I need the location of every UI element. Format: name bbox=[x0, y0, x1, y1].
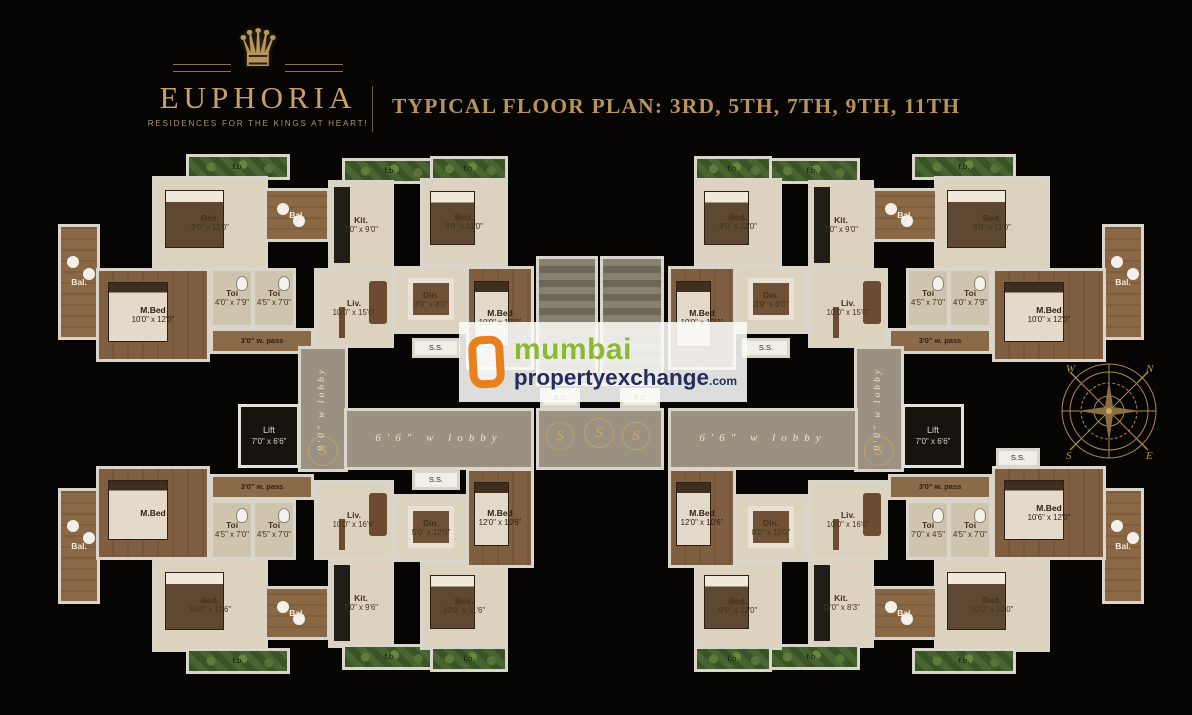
room-label: f.b. bbox=[958, 656, 969, 665]
room-label: f.b. bbox=[727, 654, 738, 663]
room-dimensions: 4'5" x 7'0" bbox=[215, 530, 249, 540]
balcony: Bal. bbox=[60, 490, 98, 602]
room-m-bed: M.Bed bbox=[98, 468, 208, 558]
room-dimensions: 12'0" x 10'6" bbox=[681, 518, 724, 528]
floor-plan-page: f.b.Bed.9'0" x 11'0"Bal.M.Bed10'0" x 12'… bbox=[0, 0, 1192, 715]
mumbai-property-exchange-logo-icon bbox=[468, 335, 506, 389]
room-label: Din. bbox=[423, 518, 439, 529]
room-label: S bbox=[595, 424, 603, 443]
room-label: Bed. bbox=[729, 596, 747, 607]
room-dimensions: 10'0" x 12'0" bbox=[1028, 315, 1071, 325]
room-kit: Kit.7'0" x 9'6" bbox=[330, 560, 392, 646]
crown-flourish-right bbox=[285, 64, 343, 72]
room-dimensions: 4'5" x 7'0" bbox=[911, 298, 945, 308]
watermark: mumbai propertyexchange.com bbox=[459, 322, 747, 402]
room-bed: Bed.9'0" x 12'0" bbox=[696, 564, 780, 648]
room-label: M.Bed bbox=[487, 508, 513, 519]
duct-s-s: S.S. bbox=[744, 340, 788, 356]
room-label: Toi bbox=[964, 520, 976, 531]
crown-flourish-left bbox=[173, 64, 231, 72]
room-dimensions: 4'0" x 7'9" bbox=[215, 298, 249, 308]
room-dimensions: 9'0" x 12'0" bbox=[719, 606, 757, 616]
compass-south-label: S bbox=[1066, 450, 1072, 462]
lobby-corridor: 6'6" w lobby bbox=[670, 410, 856, 468]
compass-rose-icon: W N S E bbox=[1056, 358, 1162, 464]
room-label: M.Bed bbox=[1036, 503, 1062, 514]
room-dimensions: 9'0" x 11'0" bbox=[445, 222, 483, 232]
room-label: Kit. bbox=[354, 593, 368, 604]
room-label: Bed. bbox=[983, 595, 1001, 606]
room-dimensions: 4'5" x 7'0" bbox=[257, 298, 291, 308]
room-toi: Toi4'5" x 7'0" bbox=[212, 502, 252, 558]
flower-bed: f.b. bbox=[696, 158, 770, 180]
room-dimensions: 10'0" x 16'9" bbox=[333, 520, 376, 530]
crown-row: ♛ bbox=[128, 14, 388, 78]
passage: 3'0" w. pass bbox=[212, 476, 312, 498]
room-label: S bbox=[632, 427, 640, 446]
balcony: Bal. bbox=[266, 190, 328, 240]
lift: Lift7'0" x 6'6" bbox=[240, 406, 298, 466]
duct-s-s: S.S. bbox=[414, 472, 458, 488]
compass-west-label: W bbox=[1066, 363, 1076, 375]
room-label: Liv. bbox=[347, 298, 361, 309]
room-dimensions: 10'0" x 11'6" bbox=[189, 605, 231, 615]
room-dimensions: 10'0" x 15'0" bbox=[333, 308, 376, 318]
room-dimensions: 9'0" x 11'0" bbox=[973, 223, 1011, 233]
room-label: f.b. bbox=[727, 164, 738, 173]
duct-s-s: S.S. bbox=[998, 450, 1038, 466]
room-label: M.Bed bbox=[487, 308, 513, 319]
room-label: Liv. bbox=[347, 510, 361, 521]
room-label: Bal. bbox=[1115, 277, 1131, 288]
compass-north-label: N bbox=[1145, 363, 1154, 375]
room-label: Bal. bbox=[71, 277, 87, 288]
room-label: 3'0" w. pass bbox=[919, 482, 962, 491]
room-label: Kit. bbox=[354, 215, 368, 226]
passage: 3'0" w. pass bbox=[212, 330, 312, 352]
room-label: 3'0" w. pass bbox=[241, 482, 284, 491]
room-label: Bed. bbox=[455, 212, 473, 223]
room-label: S.S. bbox=[1011, 453, 1025, 462]
room-label: f.b. bbox=[806, 166, 817, 175]
room-label: f.b. bbox=[463, 654, 474, 663]
compass-east-label: E bbox=[1145, 450, 1153, 462]
room-label: f.b. bbox=[958, 162, 969, 171]
room-dimensions: 7'0" x 6'6" bbox=[252, 437, 287, 447]
room-m-bed: M.Bed10'0" x 12'0" bbox=[98, 270, 208, 360]
room-label: Bed. bbox=[201, 213, 219, 224]
balcony: Bal. bbox=[1104, 226, 1142, 338]
room-din: Din.3'9" x 8'0" bbox=[396, 268, 466, 332]
room-label: Bal. bbox=[289, 608, 305, 619]
room-label: Din. bbox=[763, 518, 779, 529]
balcony: Bal. bbox=[874, 588, 936, 638]
brand-name: EUPHORIA bbox=[128, 80, 388, 116]
room-bed: Bed.9'0" x 11'0" bbox=[696, 180, 780, 264]
room-label: M.Bed bbox=[1036, 305, 1062, 316]
room-dimensions: 5'0" x 12'0" bbox=[412, 528, 450, 538]
flower-bed: f.b. bbox=[766, 160, 858, 182]
room-dimensions: 10'6" x 12'0" bbox=[1028, 513, 1071, 523]
room-label: 9'0" w lobby bbox=[317, 367, 329, 451]
room-label: Toi bbox=[922, 520, 934, 531]
room-toi: Toi7'0" x 4'5" bbox=[908, 502, 948, 558]
room-label: f.b. bbox=[384, 652, 395, 661]
watermark-propertyexchange: propertyexchange.com bbox=[514, 367, 737, 390]
room-liv: Liv.10'0" x 16'9" bbox=[316, 482, 392, 558]
s-monogram: S bbox=[546, 422, 574, 450]
room-kit: Kit.7'0" x 9'0" bbox=[810, 182, 872, 268]
room-label: Bed. bbox=[455, 596, 473, 607]
room-dimensions: 10'0" x 11'6" bbox=[443, 606, 485, 616]
passage: 3'0" w. pass bbox=[890, 476, 990, 498]
room-liv: Liv.10'0" x 15'0" bbox=[316, 270, 392, 346]
room-label: M.Bed bbox=[140, 305, 166, 316]
flower-bed: f.b. bbox=[696, 648, 770, 670]
room-kit: Kit.11'0" x 8'3" bbox=[810, 560, 872, 646]
balcony: Bal. bbox=[60, 226, 98, 338]
duct-s-s: S.S. bbox=[414, 340, 458, 356]
room-label: f.b. bbox=[806, 652, 817, 661]
balcony: Bal. bbox=[874, 190, 936, 240]
room-toi: Toi4'5" x 7'0" bbox=[950, 502, 990, 558]
flower-bed: f.b. bbox=[188, 156, 288, 178]
room-label: f.b. bbox=[232, 162, 243, 171]
room-dimensions: 3'9" x 8'0" bbox=[754, 300, 788, 310]
room-liv: Liv.10'0" x 16'0" bbox=[810, 482, 886, 558]
watermark-mumbai: mumbai bbox=[514, 335, 737, 365]
room-dimensions: 7'0" x 4'5" bbox=[911, 530, 945, 540]
room-bed: Bed.10'0" x 12'0" bbox=[936, 560, 1048, 650]
room-label: Bed. bbox=[729, 212, 747, 223]
room-toi: Toi4'5" x 7'0" bbox=[908, 270, 948, 326]
room-bed: Bed.9'0" x 11'0" bbox=[154, 178, 266, 268]
lobby-corridor: 6'6" w lobby bbox=[346, 410, 532, 468]
room-label: Kit. bbox=[834, 593, 848, 604]
header-divider bbox=[372, 86, 373, 132]
room-label: 3'0" w. pass bbox=[919, 336, 962, 345]
room-label: Din. bbox=[423, 290, 439, 301]
room-label: Kit. bbox=[834, 215, 848, 226]
room-bed: Bed.10'0" x 11'6" bbox=[422, 564, 506, 648]
room-label: Bal. bbox=[289, 210, 305, 221]
flower-bed: f.b. bbox=[914, 650, 1014, 672]
s-monogram: S bbox=[584, 418, 614, 448]
room-label: Toi bbox=[226, 288, 238, 299]
room-m-bed: M.Bed12'0" x 10'6" bbox=[670, 470, 734, 566]
room-dimensions: 3'9" x 8'0" bbox=[414, 300, 448, 310]
passage: 3'0" w. pass bbox=[890, 330, 990, 352]
room-toi: Toi4'0" x 7'9" bbox=[950, 270, 990, 326]
room-dimensions: 7'0" x 6'6" bbox=[916, 437, 951, 447]
room-label: S.S. bbox=[429, 475, 443, 484]
room-dimensions: 8'0" x 10'0" bbox=[752, 528, 790, 538]
room-label: 6'6" w lobby bbox=[375, 432, 502, 446]
room-dimensions: 9'0" x 11'0" bbox=[191, 223, 229, 233]
room-toi: Toi4'5" x 7'0" bbox=[254, 502, 294, 558]
room-label: f.b. bbox=[232, 656, 243, 665]
room-label: Bal. bbox=[1115, 541, 1131, 552]
room-bed: Bed.9'0" x 11'0" bbox=[422, 180, 506, 264]
room-dimensions: 4'5" x 7'0" bbox=[257, 530, 291, 540]
room-label: 3'0" w. pass bbox=[241, 336, 284, 345]
room-label: Lift bbox=[263, 425, 275, 436]
flower-bed: f.b. bbox=[432, 158, 506, 180]
s-monogram: S bbox=[622, 422, 650, 450]
room-m-bed: M.Bed12'0" x 10'6" bbox=[468, 470, 532, 566]
room-label: Toi bbox=[268, 520, 280, 531]
room-din: Din.5'0" x 12'0" bbox=[396, 496, 466, 560]
room-label: 9'0" w lobby bbox=[873, 367, 885, 451]
room-label: S.S. bbox=[759, 343, 773, 352]
page-title: TYPICAL FLOOR PLAN: 3RD, 5TH, 7TH, 9TH, … bbox=[392, 94, 960, 119]
room-label: M.Bed bbox=[689, 508, 715, 519]
balcony: Bal. bbox=[1104, 490, 1142, 602]
room-dimensions: 4'0" x 7'9" bbox=[953, 298, 987, 308]
watermark-propertyexchange-text: propertyexchange bbox=[514, 365, 709, 390]
crown-icon: ♛ bbox=[235, 20, 282, 78]
flower-bed: f.b. bbox=[344, 160, 436, 182]
brand-tagline: RESIDENCES FOR THE KINGS AT HEART! bbox=[128, 119, 388, 128]
watermark-text: mumbai propertyexchange.com bbox=[514, 335, 737, 390]
room-label: Bal. bbox=[897, 210, 913, 221]
lift: Lift7'0" x 6'6" bbox=[904, 406, 962, 466]
room-label: Liv. bbox=[841, 298, 855, 309]
room-dimensions: 11'0" x 8'3" bbox=[822, 603, 860, 613]
room-dimensions: 10'0" x 12'0" bbox=[971, 605, 1014, 615]
brand-block: ♛ EUPHORIA RESIDENCES FOR THE KINGS AT H… bbox=[128, 14, 388, 128]
watermark-dotcom: .com bbox=[709, 374, 737, 388]
flower-bed: f.b. bbox=[344, 646, 436, 668]
room-liv: Liv.10'0" x 15'0" bbox=[810, 270, 886, 346]
room-label: S.S. bbox=[429, 343, 443, 352]
room-m-bed: M.Bed10'6" x 12'0" bbox=[994, 468, 1104, 558]
room-m-bed: M.Bed10'0" x 12'0" bbox=[994, 270, 1104, 360]
balcony: Bal. bbox=[266, 588, 328, 638]
room-dimensions: 10'0" x 16'0" bbox=[827, 520, 870, 530]
room-label: Toi bbox=[922, 288, 934, 299]
room-label: S bbox=[556, 427, 564, 446]
room-bed: Bed.10'0" x 11'6" bbox=[154, 560, 266, 650]
room-label: Toi bbox=[226, 520, 238, 531]
room-dimensions: 9'0" x 11'0" bbox=[719, 222, 757, 232]
room-bed: Bed.9'0" x 11'0" bbox=[936, 178, 1048, 268]
room-label: f.b. bbox=[463, 164, 474, 173]
room-label: S bbox=[875, 442, 883, 461]
room-label: f.b. bbox=[384, 166, 395, 175]
flower-bed: f.b. bbox=[432, 648, 506, 670]
flower-bed: f.b. bbox=[188, 650, 288, 672]
room-label: Toi bbox=[268, 288, 280, 299]
room-toi: Toi4'5" x 7'0" bbox=[254, 270, 294, 326]
room-label: 6'6" w lobby bbox=[699, 432, 826, 446]
flower-bed: f.b. bbox=[766, 646, 858, 668]
flower-bed: f.b. bbox=[914, 156, 1014, 178]
room-label: Liv. bbox=[841, 510, 855, 521]
room-label: S bbox=[319, 442, 327, 461]
room-label: Bed. bbox=[201, 595, 219, 606]
room-label: Din. bbox=[763, 290, 779, 301]
room-label: Toi bbox=[964, 288, 976, 299]
room-label: M.Bed bbox=[689, 308, 715, 319]
room-dimensions: 12'0" x 10'6" bbox=[479, 518, 522, 528]
room-dimensions: 10'0" x 15'0" bbox=[827, 308, 870, 318]
room-label: Bal. bbox=[897, 608, 913, 619]
room-dimensions: 7'0" x 9'0" bbox=[344, 225, 378, 235]
room-din: Din.8'0" x 10'0" bbox=[736, 496, 806, 560]
room-label: M.Bed bbox=[140, 508, 166, 519]
room-label: Bed. bbox=[983, 213, 1001, 224]
room-dimensions: 7'0" x 9'6" bbox=[344, 603, 378, 613]
room-label: Lift bbox=[927, 425, 939, 436]
room-label: Bal. bbox=[71, 541, 87, 552]
room-dimensions: 4'5" x 7'0" bbox=[953, 530, 987, 540]
room-kit: Kit.7'0" x 9'0" bbox=[330, 182, 392, 268]
room-dimensions: 10'0" x 12'0" bbox=[132, 315, 175, 325]
room-toi: Toi4'0" x 7'9" bbox=[212, 270, 252, 326]
room-dimensions: 7'0" x 9'0" bbox=[824, 225, 858, 235]
